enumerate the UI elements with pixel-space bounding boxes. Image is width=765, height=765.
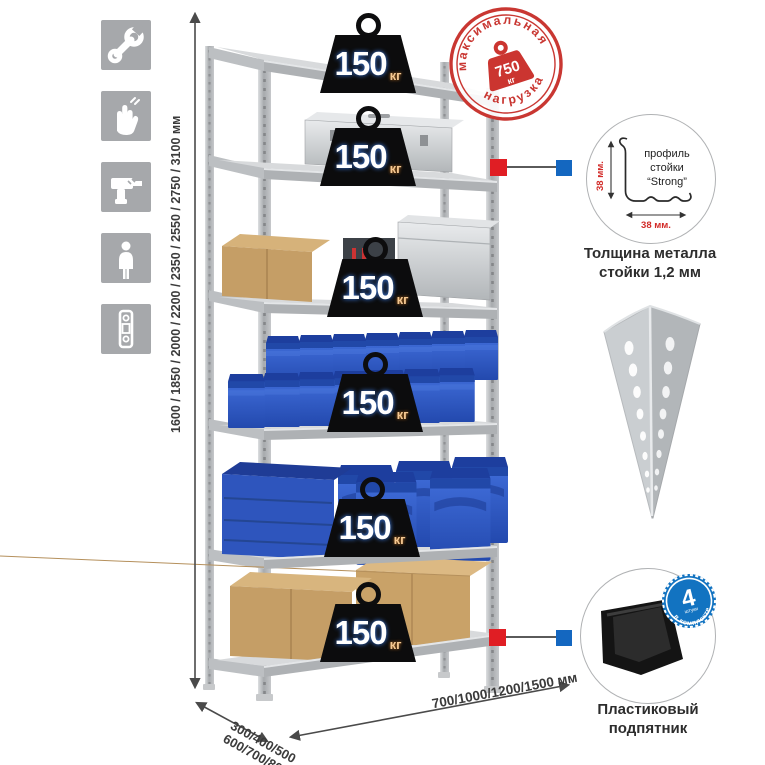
profile-caption: Толщина металла стойки 1,2 мм bbox=[570, 244, 730, 282]
foot-caption: Пластиковый подпятник bbox=[572, 700, 724, 738]
connector-blue-square bbox=[556, 160, 572, 176]
gloves-icon bbox=[101, 91, 151, 141]
connector-blue-square bbox=[556, 630, 572, 646]
profile-label-line1: профиль bbox=[644, 148, 690, 160]
connector-line bbox=[505, 636, 558, 638]
profile-detail-circle: 38 мм. 38 мм. профиль стойки “Strong” bbox=[586, 114, 716, 244]
profile-horizontal-dim-label: 38 мм. bbox=[641, 220, 671, 231]
shelf-load-badge: 150кг bbox=[320, 13, 416, 93]
weight-ring bbox=[363, 237, 388, 262]
level-icon bbox=[101, 304, 151, 354]
weight-ring bbox=[360, 477, 385, 502]
profile-label-line2: стойки bbox=[650, 162, 684, 174]
connector-red-square bbox=[490, 159, 507, 176]
shelf-load-badge: 150кг bbox=[320, 582, 416, 662]
person-icon bbox=[101, 233, 151, 283]
shelf-load-badge: 150кг bbox=[320, 106, 416, 186]
shelf-load-badge: 150кг bbox=[327, 237, 423, 317]
wrench-icon bbox=[101, 20, 151, 70]
corner-post-image bbox=[596, 296, 708, 528]
shelf-load-badge: 150кг bbox=[327, 352, 423, 432]
shelf-load-badge: 150кг bbox=[324, 477, 420, 557]
profile-vertical-dim-label: 38 мм. bbox=[595, 161, 606, 191]
weight-ring bbox=[363, 352, 388, 377]
connector-line bbox=[506, 166, 558, 168]
max-load-stamp: 750 кг максимальная нагрузка bbox=[438, 2, 574, 130]
weight-ring bbox=[356, 582, 381, 607]
profile-label-line3: “Strong” bbox=[647, 176, 687, 188]
drill-icon bbox=[101, 162, 151, 212]
weight-ring bbox=[356, 13, 381, 38]
cardboard-box bbox=[222, 234, 330, 302]
weight-ring bbox=[356, 106, 381, 131]
rack-foot bbox=[203, 684, 215, 690]
rack-foot bbox=[256, 694, 273, 701]
connector-red-square bbox=[489, 629, 506, 646]
count-badge: 4 штуки в комплекте bbox=[660, 572, 718, 630]
infographic-canvas: 150кг 150кг 150кг 150кг 150кг 150кг 750 bbox=[0, 0, 765, 765]
rack-foot bbox=[438, 672, 450, 678]
